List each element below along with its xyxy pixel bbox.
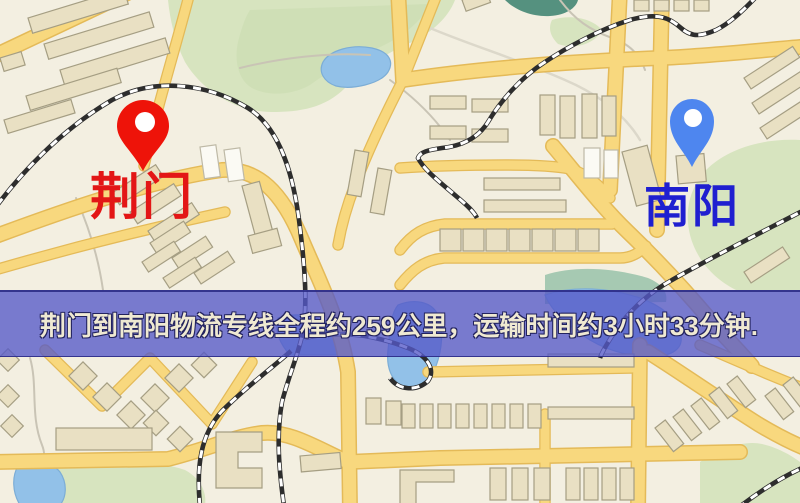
origin-label: 荆门 bbox=[90, 172, 194, 222]
route-banner: 荆门到南阳物流专线全程约259公里，运输时间约3小时33分钟. bbox=[0, 290, 800, 357]
destination-label: 南阳 bbox=[644, 183, 740, 229]
route-banner-text: 荆门到南阳物流专线全程约259公里，运输时间约3小时33分钟. bbox=[40, 306, 758, 343]
map-canvas bbox=[0, 0, 800, 503]
logistics-route-map: 荆门 南阳 荆门到南阳物流专线全程约259公里，运输时间约3小时33分钟. bbox=[0, 0, 800, 503]
